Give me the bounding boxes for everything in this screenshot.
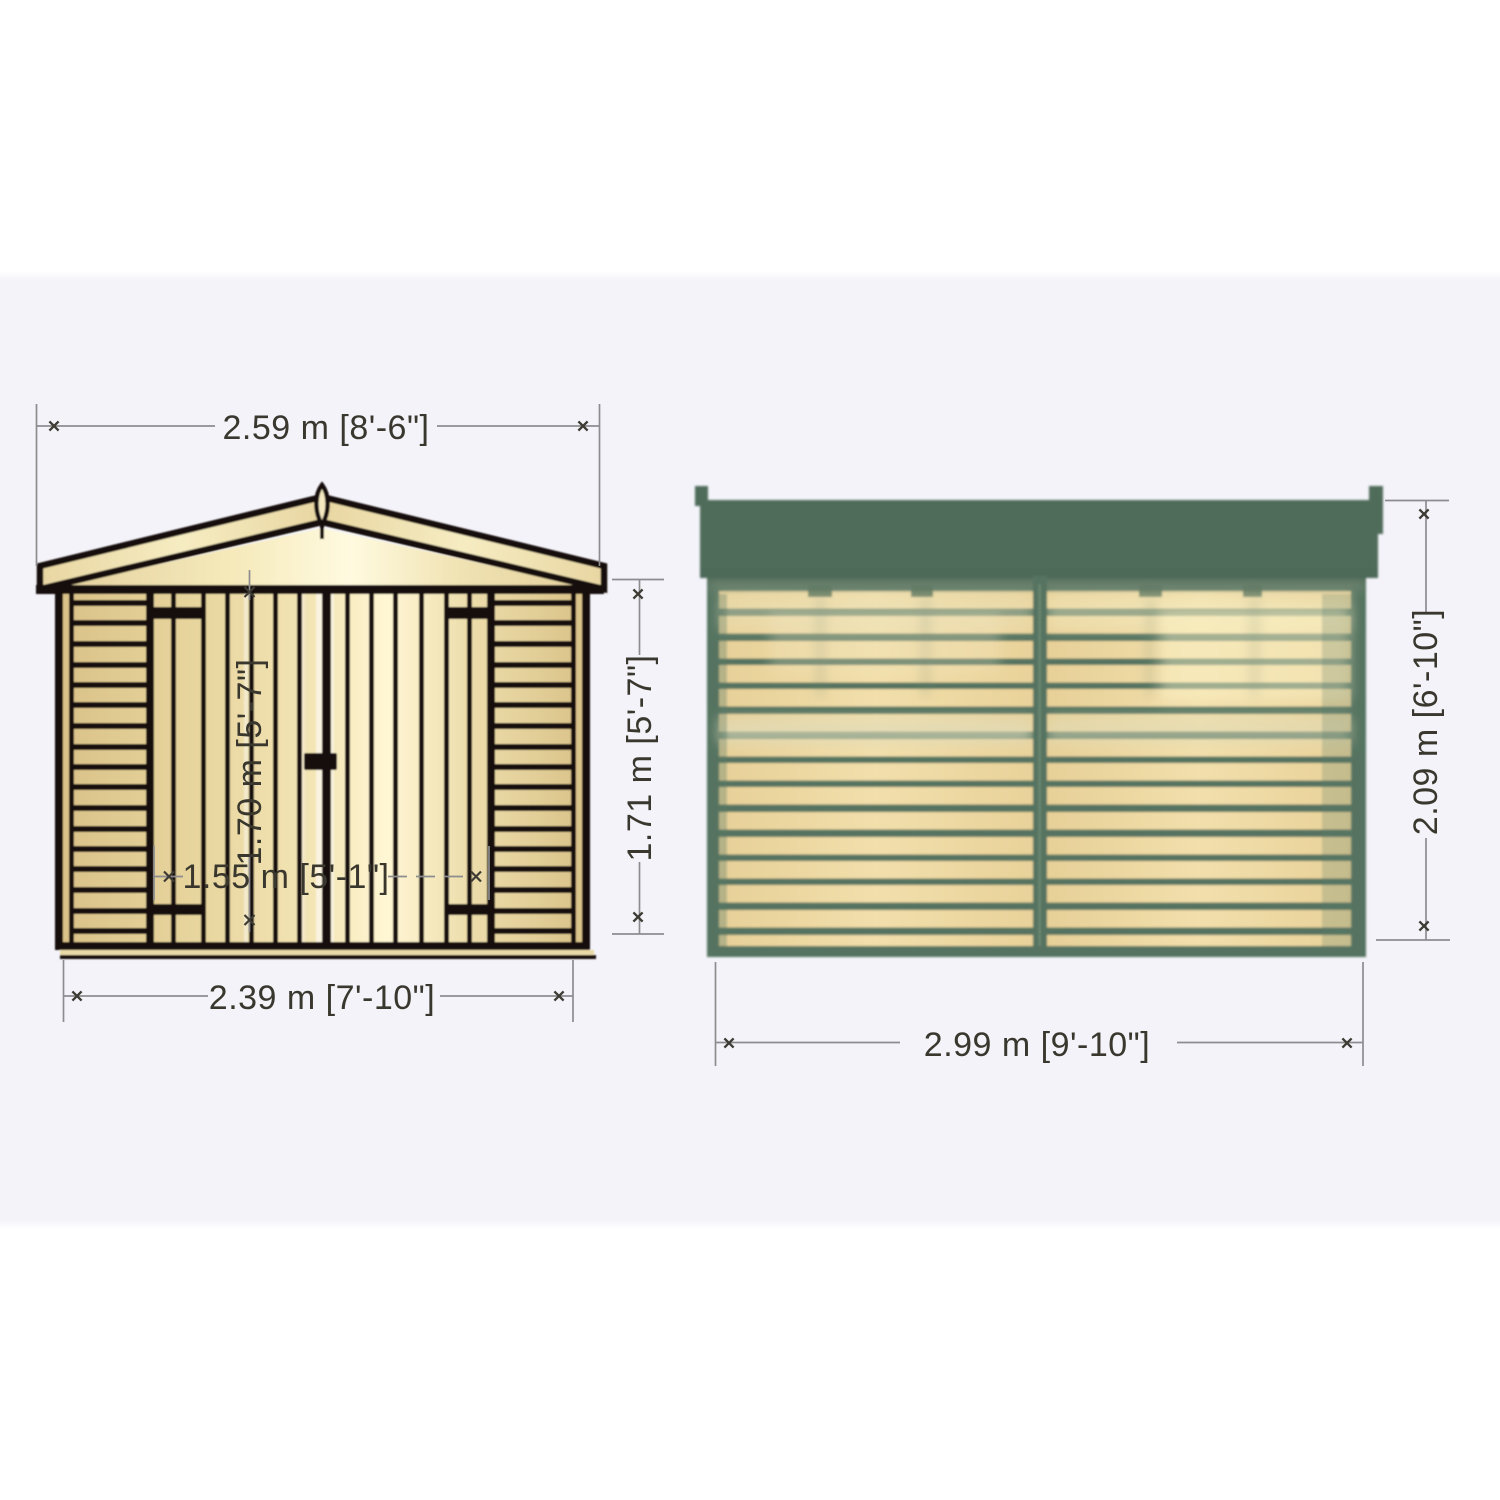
- svg-text:1.71 m [5'-7"]: 1.71 m [5'-7"]: [621, 655, 659, 862]
- svg-text:2.99 m [9'-10"]: 2.99 m [9'-10"]: [924, 1026, 1150, 1064]
- svg-text:2.39 m [7'-10"]: 2.39 m [7'-10"]: [209, 979, 435, 1017]
- svg-text:1.70 m [5'-7"]: 1.70 m [5'-7"]: [231, 659, 269, 866]
- svg-text:2.59 m [8'-6"]: 2.59 m [8'-6"]: [223, 409, 430, 447]
- svg-text:1.55 m [5'-1"]: 1.55 m [5'-1"]: [183, 858, 390, 896]
- svg-text:2.09 m [6'-10"]: 2.09 m [6'-10"]: [1407, 609, 1445, 835]
